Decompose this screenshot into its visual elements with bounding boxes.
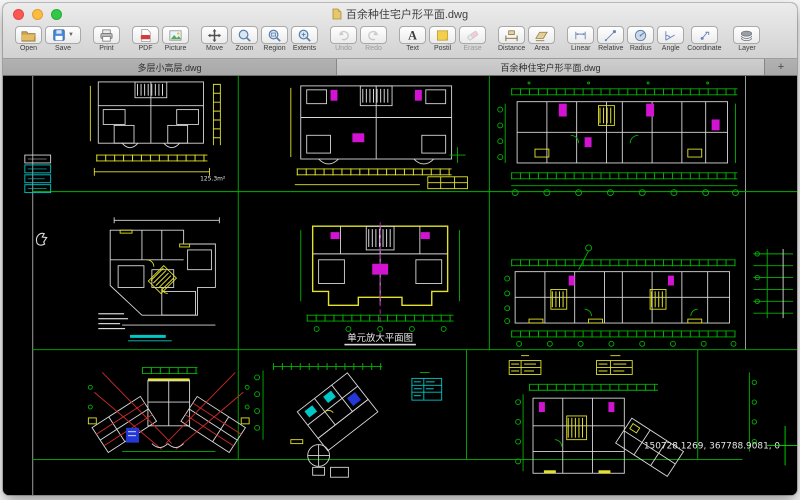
minimize-button[interactable] [32,9,43,20]
text-icon: A [405,28,420,43]
move-button[interactable]: Move [201,26,228,52]
window-title: 百余种住宅户形平面.dwg [346,6,468,22]
region-button[interactable]: Region [261,26,288,52]
layer-button[interactable]: Layer [733,26,760,52]
fullscreen-button[interactable] [51,9,62,20]
distance-button[interactable]: Distance [498,26,525,52]
open-folder-icon [21,28,36,43]
postil-note-icon [435,28,450,43]
extents-button[interactable]: Extents [291,26,318,52]
plan-middle-left [98,217,219,341]
plan-bottom-right [509,356,756,477]
tab-other-file-label: 多层小高层.dwg [137,61,201,74]
area-icon [534,28,549,43]
coordinate-button[interactable]: Coordinate [687,26,721,52]
tab-current-file-label: 百余种住宅户形平面.dwg [500,61,600,74]
toolbar: Open ▼ Save Print PDF Picture Move [3,25,797,58]
tab-bar: 多层小高层.dwg 百余种住宅户形平面.dwg + [3,59,797,76]
app-window: 百余种住宅户形平面.dwg Open ▼ Save Print PDF [3,3,797,495]
picture-icon [168,28,183,43]
extents-magnifier-icon [297,28,312,43]
erase-button[interactable]: Erase [459,26,486,52]
schedule-table-yellow-1 [509,356,541,375]
tab-current-file[interactable]: 百余种住宅户形平面.dwg [337,59,765,75]
text-button[interactable]: A Text [399,26,426,52]
redo-arrow-icon [366,28,381,43]
pdf-file-icon [138,28,153,43]
zoom-magnifier-icon [237,28,252,43]
schedule-table-small [428,177,468,189]
plan-top-center [291,86,468,189]
sheet-grid-lines [33,76,797,495]
area-button[interactable]: Area [528,26,555,52]
coordinate-readout: 150728.1269, 367788.9081, 0 [644,442,781,452]
svg-text:A: A [408,28,417,42]
picture-button[interactable]: Picture [162,26,189,52]
save-button[interactable]: ▼ Save [45,26,81,52]
new-tab-button[interactable]: + [765,59,797,75]
plan-middle-center: 单元放大平面图 [301,222,460,345]
schedule-table-cyan [412,372,442,400]
printer-icon [99,28,114,43]
window-chrome: 百余种住宅户形平面.dwg Open ▼ Save Print PDF [3,3,797,59]
move-arrows-icon [207,28,222,43]
close-button[interactable] [13,9,24,20]
postil-button[interactable]: Postil [429,26,456,52]
schedule-table-yellow-2 [597,356,633,375]
area-label: 125.3m² [200,176,225,183]
relative-button[interactable]: Relative [597,26,624,52]
open-button[interactable]: Open [15,26,42,52]
plan-top-left: 125.3m² [90,82,225,183]
undo-button[interactable]: Undo [330,26,357,52]
layers-icon [739,28,754,43]
plan-caption: 单元放大平面图 [347,332,413,344]
traffic-lights [13,9,62,20]
print-button[interactable]: Print [93,26,120,52]
undo-arrow-icon [336,28,351,43]
plan-bottom-center [255,367,442,478]
pan-cursor-icon [36,233,46,245]
layer-legend [25,155,51,193]
plan-middle-right [505,245,736,346]
linear-button[interactable]: Linear [567,26,594,52]
save-dropdown-chevron-icon[interactable]: ▼ [68,32,74,38]
plan-top-right [498,82,739,196]
coordinate-leader-icon [697,28,712,43]
zoom-button[interactable]: Zoom [231,26,258,52]
plan-right-edge [753,249,793,318]
angle-button[interactable]: Angle [657,26,684,52]
radius-button[interactable]: Radius [627,26,654,52]
eraser-icon [465,28,480,43]
distance-ruler-icon [504,28,519,43]
region-magnifier-icon [267,28,282,43]
cad-canvas[interactable]: 125.3m² [3,76,797,495]
save-floppy-icon [52,28,66,42]
plan-bottom-left [88,368,249,453]
pdf-button[interactable]: PDF [132,26,159,52]
radius-circle-icon [633,28,648,43]
title-bar[interactable]: 百余种住宅户形平面.dwg [3,3,797,25]
linear-dimension-icon [573,28,588,43]
document-icon [332,8,342,20]
redo-button[interactable]: Redo [360,26,387,52]
angle-arc-icon [663,28,678,43]
relative-point-icon [603,28,618,43]
tab-other-file[interactable]: 多层小高层.dwg [3,59,337,75]
